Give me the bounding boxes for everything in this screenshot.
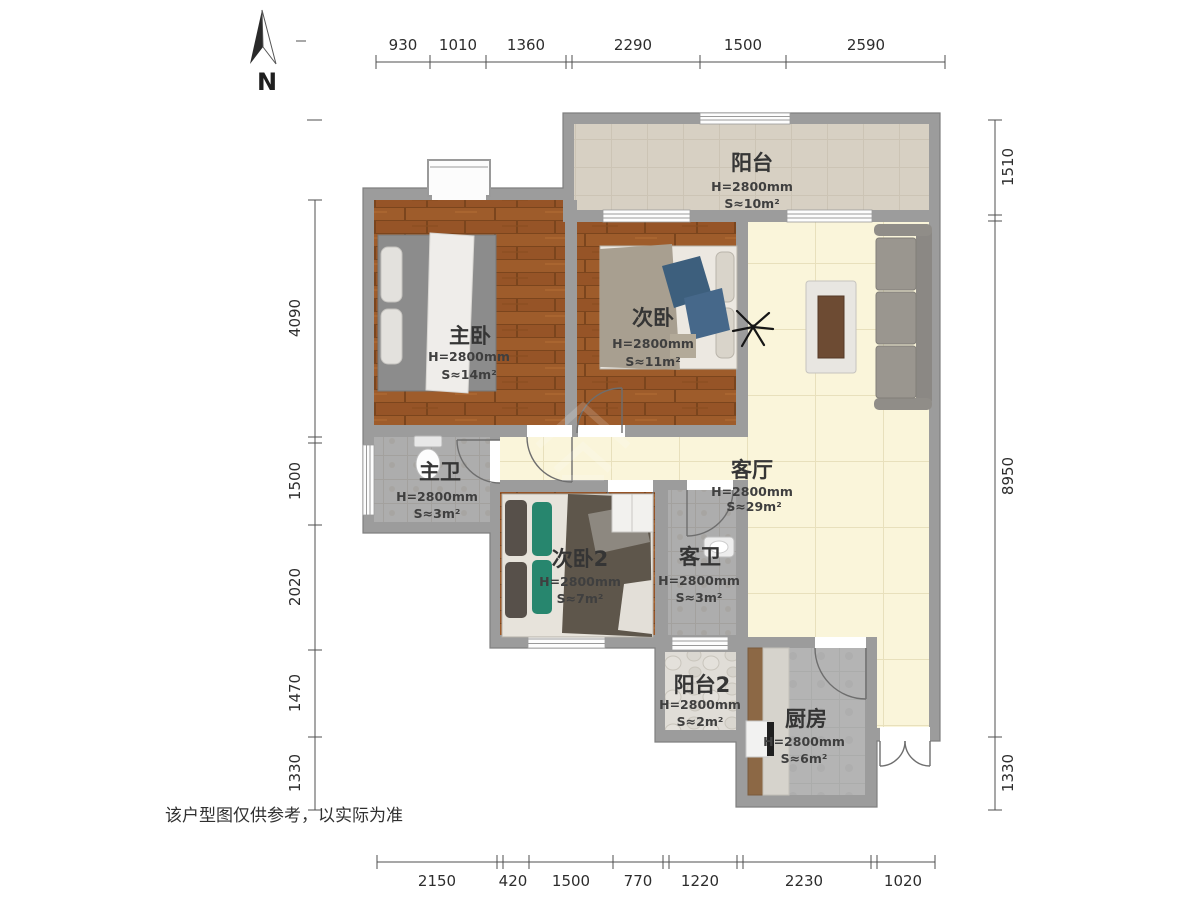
room-area-kitchen: S≈6m² bbox=[781, 751, 828, 766]
dim-left-4: 1330 bbox=[286, 754, 304, 792]
room-height-bedroom2: H=2800mm bbox=[612, 336, 694, 351]
room-height-balcony2: H=2800mm bbox=[659, 697, 741, 712]
dim-right-2: 1330 bbox=[999, 754, 1017, 792]
room-label-balcony2: 阳台2 bbox=[674, 673, 731, 697]
room-area-bedroom2: S≈11m² bbox=[625, 354, 680, 369]
dim-top-4: 1500 bbox=[724, 36, 762, 54]
kitchen-counter-icon bbox=[746, 648, 789, 795]
dim-top-0: 930 bbox=[389, 36, 418, 54]
room-height-bedroom3: H=2800mm bbox=[539, 574, 621, 589]
room-label-bedroom2: 次卧 bbox=[632, 306, 674, 330]
dim-bottom-5: 2230 bbox=[785, 872, 823, 890]
room-label-guest-bath: 客卫 bbox=[679, 545, 721, 569]
window bbox=[787, 210, 872, 222]
wardrobe-icon bbox=[612, 494, 653, 532]
room-height-living-room: H=2800mm bbox=[711, 484, 793, 499]
dim-top-3: 2290 bbox=[614, 36, 652, 54]
room-height-master-bath: H=2800mm bbox=[396, 489, 478, 504]
room-area-living-room: S≈29m² bbox=[726, 499, 781, 514]
room-area-balcony: S≈10m² bbox=[724, 196, 779, 211]
dim-bottom-0: 2150 bbox=[418, 872, 456, 890]
sofa-icon bbox=[874, 224, 932, 410]
dim-bottom-1: 420 bbox=[499, 872, 528, 890]
dim-bottom-3: 770 bbox=[624, 872, 653, 890]
room-area-master-bath: S≈3m² bbox=[414, 506, 461, 521]
room-label-living-room: 客厅 bbox=[731, 458, 773, 482]
room-label-balcony: 阳台 bbox=[731, 151, 773, 175]
north-arrow-icon: N bbox=[250, 10, 306, 96]
room-area-master-bedroom: S≈14m² bbox=[441, 367, 496, 382]
bay-window bbox=[428, 160, 490, 200]
dimension-top: 930 1010 1360 2290 1500 2590 bbox=[376, 36, 945, 69]
room-height-kitchen: H=2800mm bbox=[763, 734, 845, 749]
dim-top-5: 2590 bbox=[847, 36, 885, 54]
room-area-guest-bath: S≈3m² bbox=[676, 590, 723, 605]
dimension-left: 4090 1500 2020 1470 1330 bbox=[286, 120, 322, 810]
coffee-table-icon bbox=[806, 281, 856, 373]
dim-bottom-4: 1220 bbox=[681, 872, 719, 890]
room-label-kitchen: 厨房 bbox=[785, 707, 827, 731]
entry-double-door bbox=[880, 741, 930, 766]
room-area-bedroom3: S≈7m² bbox=[557, 591, 604, 606]
disclaimer-text: 该户型图仅供参考，以实际为准 bbox=[165, 806, 403, 826]
dim-left-2: 2020 bbox=[286, 568, 304, 606]
room-label-master-bedroom: 主卧 bbox=[449, 324, 491, 348]
dim-left-0: 4090 bbox=[286, 299, 304, 337]
dimension-bottom: 2150 420 1500 770 1220 2230 1020 bbox=[377, 855, 935, 890]
room-label-bedroom3: 次卧2 bbox=[552, 547, 609, 571]
room-height-guest-bath: H=2800mm bbox=[658, 573, 740, 588]
floor-plan-canvas: 阳台 H=2800mm S≈10m² 主卧 H=2800mm S≈14m² 次卧… bbox=[0, 0, 1200, 900]
room-area-balcony2: S≈2m² bbox=[677, 714, 724, 729]
dim-top-1: 1010 bbox=[439, 36, 477, 54]
dim-right-1: 8950 bbox=[999, 457, 1017, 495]
dim-right-0: 1510 bbox=[999, 148, 1017, 186]
window bbox=[363, 445, 374, 515]
window bbox=[700, 113, 790, 124]
dim-bottom-6: 1020 bbox=[884, 872, 922, 890]
dim-bottom-2: 1500 bbox=[552, 872, 590, 890]
room-height-master-bedroom: H=2800mm bbox=[428, 349, 510, 364]
window bbox=[672, 637, 728, 650]
north-label: N bbox=[257, 68, 277, 96]
dim-left-3: 1470 bbox=[286, 674, 304, 712]
dim-left-1: 1500 bbox=[286, 462, 304, 500]
room-height-balcony: H=2800mm bbox=[711, 179, 793, 194]
dim-top-2: 1360 bbox=[507, 36, 545, 54]
dimension-right: 1510 8950 1330 bbox=[988, 120, 1017, 810]
window bbox=[603, 210, 690, 222]
room-label-master-bath: 主卫 bbox=[419, 460, 461, 484]
